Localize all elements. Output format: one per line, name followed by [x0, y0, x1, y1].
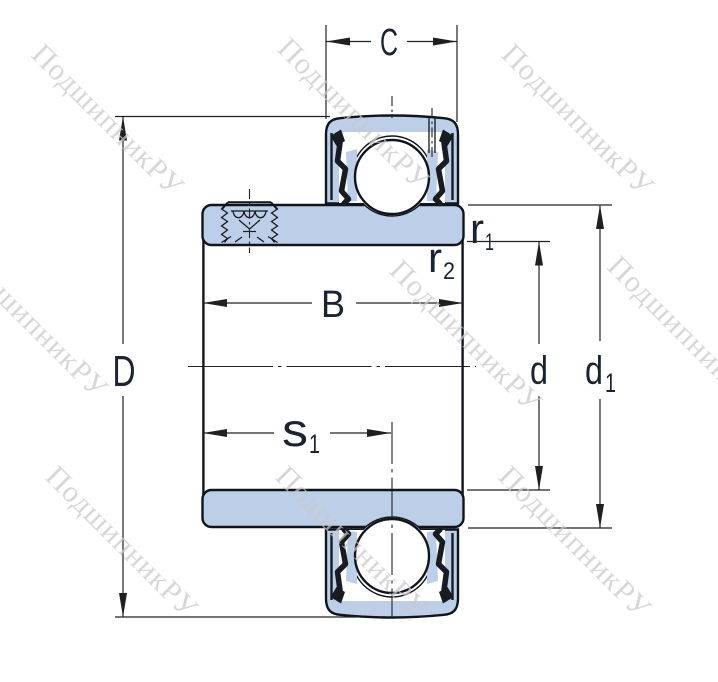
- watermark-text: ПодшипникРУ: [601, 250, 718, 416]
- svg-text:r: r: [470, 205, 484, 252]
- dim-label-C: C: [380, 22, 398, 64]
- bearing-drawing-page: C D B s 1 r 1 r 2 d d 1 ПодшипникРУ Подш…: [0, 0, 718, 682]
- svg-text:d: d: [585, 349, 603, 393]
- watermark-text: ПодшипникРУ: [383, 254, 549, 420]
- watermark-text: ПодшипникРУ: [495, 38, 661, 204]
- bearing-cross-section-drawing: C D B s 1 r 1 r 2 d d 1 ПодшипникРУ Подш…: [0, 0, 718, 682]
- dim-label-B: B: [321, 284, 345, 326]
- svg-text:2: 2: [443, 258, 455, 285]
- watermarks: ПодшипникРУ ПодшипникРУ ПодшипникРУ Подш…: [0, 32, 718, 626]
- svg-text:1: 1: [485, 229, 494, 256]
- dim-label-d1: d 1: [585, 349, 616, 398]
- svg-text:1: 1: [309, 429, 320, 459]
- watermark-text: ПодшипникРУ: [25, 38, 191, 204]
- svg-text:1: 1: [605, 368, 616, 398]
- svg-text:r: r: [428, 234, 442, 281]
- watermark-text: ПодшипникРУ: [0, 240, 115, 406]
- dim-label-s1: s 1: [282, 404, 320, 459]
- watermark-text: ПодшипникРУ: [492, 460, 658, 626]
- dim-label-D: D: [113, 347, 136, 396]
- dim-label-r1: r 1: [470, 205, 494, 256]
- svg-text:s: s: [282, 404, 308, 456]
